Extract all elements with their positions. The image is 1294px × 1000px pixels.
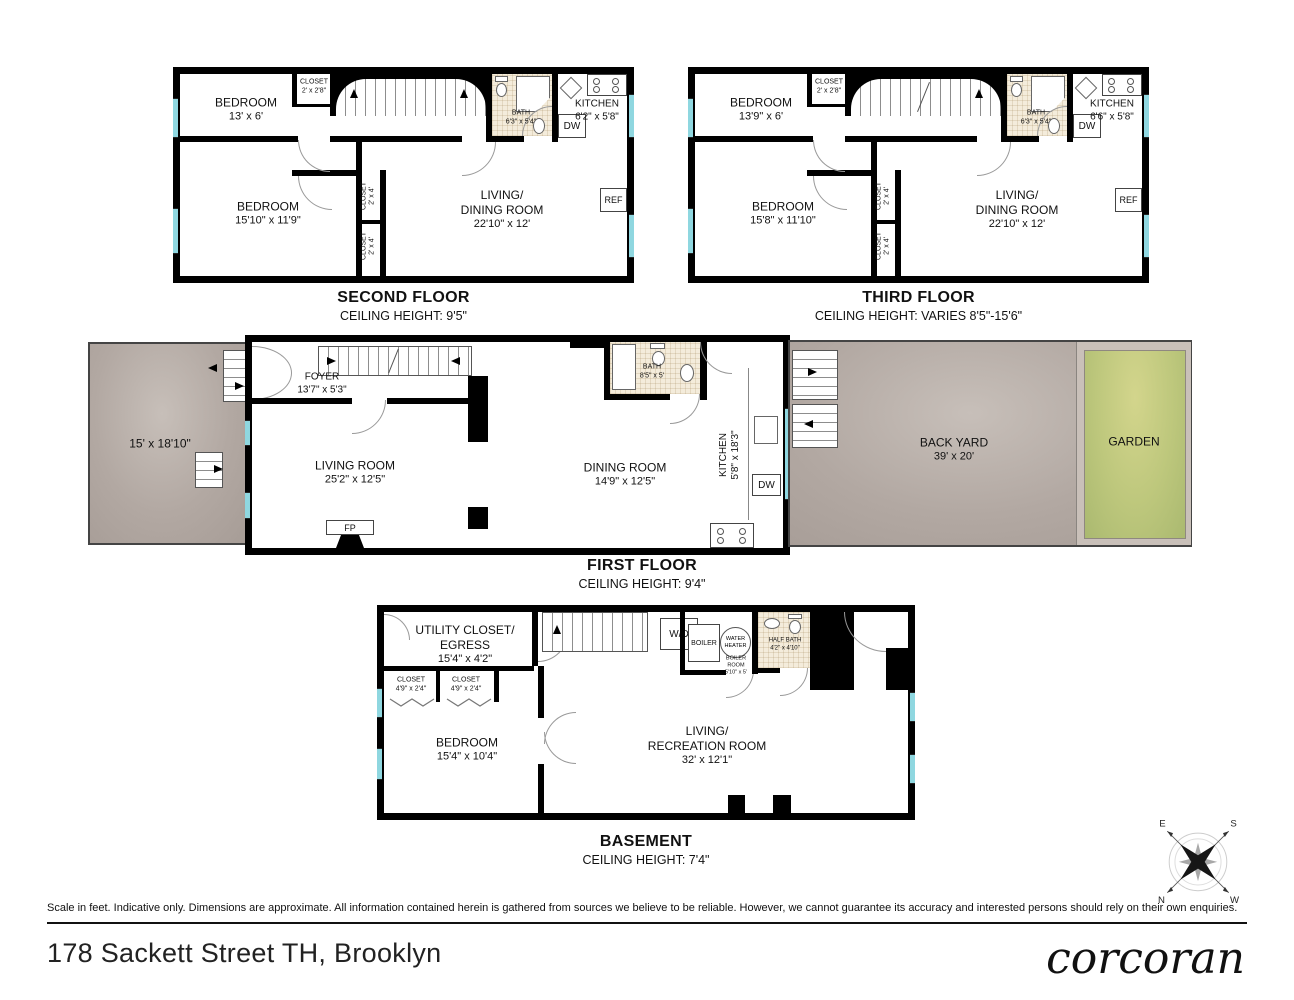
wall — [728, 795, 745, 813]
room-dims: 4'9" x 2'4" — [396, 685, 427, 694]
front-yard: 15' x 18'10" — [88, 342, 252, 545]
room-name: DINING ROOM — [976, 203, 1059, 218]
room-dims: 6'6" x 5'8" — [1090, 111, 1134, 124]
floor-name: FIRST FLOOR — [88, 557, 1196, 575]
room-name: DINING ROOM — [461, 203, 544, 218]
window — [629, 214, 634, 258]
room-name: BATH — [640, 363, 664, 372]
room-name: CLOSET — [361, 182, 369, 210]
ref-label: REF — [605, 195, 623, 205]
room-dims: 22'10" x 12' — [976, 218, 1059, 232]
room-name: KITCHEN — [718, 430, 730, 479]
room-name: EGRESS — [415, 638, 514, 653]
up-arrow-icon — [553, 625, 561, 634]
second-floor-plan: DW REF BEDROOM 13' x 6' CLOSET 2' x 2'8"… — [173, 67, 634, 283]
room-dims: 15'4" x 10'4" — [436, 751, 498, 765]
window — [173, 208, 178, 254]
kitchen-sink — [560, 77, 583, 100]
room-name: CLOSET — [876, 232, 884, 260]
floor-title-third: THIRD FLOOR CEILING HEIGHT: VARIES 8'5"-… — [688, 289, 1149, 323]
yard-dims: 15' x 18'10" — [129, 437, 191, 452]
room-name: FOYER — [297, 372, 346, 385]
ceiling-height: CEILING HEIGHT: VARIES 8'5"-15'6" — [688, 309, 1149, 323]
fireplace: FP — [326, 520, 374, 535]
burner-icon — [612, 86, 619, 93]
right-arrow-icon — [235, 382, 244, 390]
ceiling-height: CEILING HEIGHT: 9'4" — [88, 577, 1196, 591]
burner-icon — [1127, 78, 1134, 85]
room-label-half-bath: HALF BATH 4'2" x 4'10" — [769, 638, 802, 653]
stair-break-line — [388, 349, 399, 373]
room-dims: 5'10" x 5' — [725, 669, 747, 676]
wall — [758, 668, 780, 673]
dishwasher: DW — [752, 474, 781, 496]
dw-label: DW — [758, 480, 775, 491]
room-name: CLOSET — [361, 232, 369, 260]
floor-title-basement: BASEMENT CEILING HEIGHT: 7'4" — [377, 833, 915, 867]
room-name: BEDROOM — [235, 200, 301, 215]
door-arc — [352, 400, 386, 434]
boiler: BOILER — [688, 624, 720, 662]
room-dims: 15'4" x 4'2" — [415, 653, 514, 667]
window — [1144, 214, 1149, 258]
boiler-label: BOILER — [691, 640, 717, 647]
room-label-closet: CLOSET 2' x 4' — [876, 232, 893, 260]
room-name: UTILITY CLOSET/ — [415, 623, 514, 638]
door-arc — [670, 394, 700, 424]
bathroom-sink — [680, 364, 694, 382]
floor-name: SECOND FLOOR — [173, 289, 634, 307]
room-label-bedroom: BEDROOM 15'10" x 11'9" — [235, 200, 301, 229]
room-label-backyard: BACK YARD 39' x 20' — [920, 436, 988, 465]
compass-s-label: S — [1230, 818, 1236, 829]
shower — [612, 344, 636, 390]
floor-title-first: FIRST FLOOR CEILING HEIGHT: 9'4" — [88, 557, 1196, 591]
right-arrow-icon — [214, 465, 223, 473]
wall — [871, 220, 901, 224]
room-name: KITCHEN — [1090, 99, 1134, 112]
window — [688, 98, 693, 138]
room-name: ROOM — [725, 663, 747, 670]
door-arc — [780, 668, 808, 696]
room-name: BATH — [506, 109, 537, 118]
room-label-living-rec: LIVING/ RECREATION ROOM 32' x 12'1" — [648, 724, 766, 768]
stove — [1102, 74, 1142, 96]
room-label-kitchen: KITCHEN 6'6" x 5'8" — [1090, 99, 1134, 124]
room-dims: 8'5" x 5' — [640, 372, 664, 381]
corcoran-logo: corcoran — [1046, 933, 1245, 984]
up-arrow-icon — [350, 89, 358, 98]
toilet-bowl — [789, 620, 801, 634]
room-name: CLOSET — [396, 676, 427, 685]
room-label-closet: CLOSET 2' x 4' — [361, 182, 378, 210]
room-label-utility: UTILITY CLOSET/ EGRESS 15'4" x 4'2" — [415, 623, 514, 667]
wall — [468, 507, 488, 529]
disclaimer-text: Scale in feet. Indicative only. Dimensio… — [47, 902, 1247, 924]
room-dims: 5'8" x 18'3" — [730, 430, 742, 479]
wall — [384, 666, 534, 671]
room-label-kitchen: KITCHEN 5'8" x 18'3" — [718, 430, 742, 479]
room-dims: 15' x 18'10" — [129, 437, 191, 452]
toilet-bowl — [496, 83, 507, 97]
toilet-tank — [650, 343, 665, 349]
room-dims: 15'10" x 11'9" — [235, 215, 301, 229]
window — [910, 754, 915, 784]
ceiling-height: CEILING HEIGHT: 7'4" — [377, 853, 915, 867]
wall — [773, 795, 791, 813]
wall — [252, 398, 352, 404]
stair-break-line — [917, 82, 930, 112]
door-arc — [544, 732, 576, 764]
room-name: BATH — [1021, 109, 1052, 118]
door-arc — [813, 176, 847, 210]
wall — [886, 648, 908, 690]
room-name: BOILER — [725, 656, 747, 663]
room-name: CLOSET — [876, 182, 884, 210]
door-arc — [252, 346, 292, 373]
first-floor-house: DW FP FOYER 13'7" x 5'3" LIVING ROOM 25'… — [245, 335, 790, 555]
floor-name: THIRD FLOOR — [688, 289, 1149, 307]
room-dims: 6'2" x 5'8" — [575, 111, 619, 124]
burner-icon — [739, 537, 746, 544]
burner-icon — [1108, 78, 1115, 85]
wall — [538, 764, 544, 813]
door-arc — [462, 142, 496, 176]
room-dims: 22'10" x 12' — [461, 218, 544, 232]
ref-label: REF — [1120, 195, 1138, 205]
room-name: BEDROOM — [730, 96, 792, 111]
room-label-kitchen: KITCHEN 6'2" x 5'8" — [575, 99, 619, 124]
refrigerator: REF — [600, 188, 627, 212]
toilet-tank — [495, 76, 508, 82]
room-label-dining: DINING ROOM 14'9" x 12'5" — [584, 461, 667, 490]
wall — [468, 376, 488, 442]
window — [688, 208, 693, 254]
bathroom-sink — [764, 618, 780, 629]
room-dims: 13'7" x 5'3" — [297, 384, 346, 397]
back-steps — [792, 404, 838, 448]
room-dims: 32' x 12'1" — [648, 754, 766, 768]
room-label-garden: GARDEN — [1108, 435, 1159, 450]
burner-icon — [717, 528, 724, 535]
fp-label: FP — [344, 523, 356, 533]
burner-icon — [739, 528, 746, 535]
room-name: BEDROOM — [215, 96, 277, 111]
room-dims: 39' x 20' — [920, 451, 988, 465]
burner-icon — [612, 78, 619, 85]
back-yard: BACK YARD 39' x 20' GARDEN — [788, 340, 1192, 547]
room-dims: 6'3" x 5'4" — [506, 118, 537, 127]
room-name: RECREATION ROOM — [648, 739, 766, 754]
room-name: LIVING ROOM — [315, 459, 395, 474]
left-arrow-icon — [208, 364, 217, 372]
toilet-bowl — [1011, 83, 1022, 97]
room-label-bedroom: BEDROOM 13' x 6' — [215, 96, 277, 125]
room-label-bedroom: BEDROOM 15'8" x 11'10" — [750, 200, 816, 229]
window — [377, 748, 382, 780]
first-floor-plan: 15' x 18'10" — [88, 335, 1196, 555]
compass-e-label: E — [1159, 818, 1165, 829]
room-name: KITCHEN — [575, 99, 619, 112]
room-label-living-dining: LIVING/ DINING ROOM 22'10" x 12' — [461, 188, 544, 232]
room-name: BACK YARD — [920, 436, 988, 451]
wall — [494, 666, 499, 702]
room-name: CLOSET — [815, 78, 843, 87]
kitchen-sink — [754, 416, 778, 444]
closet-door-zigzag-icon — [389, 698, 435, 708]
room-name: HALF BATH — [769, 638, 802, 646]
room-dims: 13'9" x 6' — [730, 111, 792, 125]
wall — [387, 398, 477, 404]
room-label-bath: BATH 6'3" x 5'4" — [506, 109, 537, 127]
room-dims: 2' x 4' — [884, 182, 892, 210]
burner-icon — [593, 78, 600, 85]
room-label-closet: CLOSET 2' x 2'8" — [300, 78, 328, 96]
wall — [604, 394, 670, 400]
wall — [436, 666, 440, 702]
room-name: DINING ROOM — [584, 461, 667, 476]
up-arrow-icon — [460, 89, 468, 98]
wd-label: W/D — [669, 629, 688, 640]
room-dims: 25'2" x 12'5" — [315, 474, 395, 488]
room-label-bedroom: BEDROOM 15'4" x 10'4" — [436, 736, 498, 765]
room-label-closet: CLOSET 4'9" x 2'4" — [451, 676, 482, 694]
burner-icon — [593, 86, 600, 93]
closet-door-zigzag-icon — [446, 698, 492, 708]
water-heater: WATER HEATER — [720, 627, 751, 658]
wall — [356, 220, 386, 224]
stairs — [542, 612, 648, 652]
room-label-foyer: FOYER 13'7" x 5'3" — [297, 372, 346, 397]
stove — [587, 74, 627, 96]
floor-name: BASEMENT — [377, 833, 915, 851]
door-arc — [298, 140, 330, 172]
ceiling-height: CEILING HEIGHT: 9'5" — [173, 309, 634, 323]
room-label-closet: CLOSET 2' x 4' — [876, 182, 893, 210]
compass-rose: E S N W — [1150, 812, 1246, 908]
right-arrow-icon — [808, 368, 817, 376]
third-floor-plan: DW REF BEDROOM 13'9" x 6' CLOSET 2' x 2'… — [688, 67, 1149, 283]
window — [629, 94, 634, 138]
door-arc — [252, 373, 292, 400]
room-label-closet: CLOSET 2' x 2'8" — [815, 78, 843, 96]
room-label-closet: CLOSET 4'9" x 2'4" — [396, 676, 427, 694]
burner-icon — [1127, 86, 1134, 93]
water-heater-label: WATER — [726, 636, 745, 643]
room-dims: 2' x 4' — [884, 232, 892, 260]
room-label-closet: CLOSET 2' x 4' — [361, 232, 378, 260]
burner-icon — [1108, 86, 1115, 93]
floorplan-page: DW REF BEDROOM 13' x 6' CLOSET 2' x 2'8"… — [0, 0, 1294, 1000]
left-arrow-icon — [451, 357, 460, 365]
counter-edge — [748, 368, 749, 520]
floor-title-second: SECOND FLOOR CEILING HEIGHT: 9'5" — [173, 289, 634, 323]
wall — [845, 136, 977, 142]
kitchen-sink — [1075, 77, 1098, 100]
toilet-tank — [1010, 76, 1023, 82]
room-dims: 2' x 2'8" — [300, 87, 328, 96]
stove — [710, 523, 754, 548]
room-label-living: LIVING ROOM 25'2" x 12'5" — [315, 459, 395, 488]
room-name: GARDEN — [1108, 435, 1159, 450]
room-dims: 13' x 6' — [215, 111, 277, 125]
water-heater-label: HEATER — [725, 643, 747, 650]
room-label-living-dining: LIVING/ DINING ROOM 22'10" x 12' — [976, 188, 1059, 232]
burner-icon — [717, 537, 724, 544]
room-name: LIVING/ — [976, 188, 1059, 203]
room-name: BEDROOM — [750, 200, 816, 215]
door-arc — [813, 140, 845, 172]
right-arrow-icon — [327, 357, 336, 365]
window — [910, 692, 915, 722]
room-name: BEDROOM — [436, 736, 498, 751]
room-dims: 2' x 4' — [369, 232, 377, 260]
room-dims: 6'3" x 5'4" — [1021, 118, 1052, 127]
wall — [330, 136, 462, 142]
window — [173, 98, 178, 138]
refrigerator: REF — [1115, 188, 1142, 212]
basement-plan: UTILITY CLOSET/ EGRESS 15'4" x 4'2" CLOS… — [377, 605, 915, 820]
room-name: CLOSET — [300, 78, 328, 87]
wall — [680, 612, 685, 674]
window — [1144, 94, 1149, 138]
room-label-boiler-room: BOILER ROOM 5'10" x 5' — [725, 656, 747, 677]
window — [245, 420, 250, 446]
room-dims: 15'8" x 11'10" — [750, 215, 816, 229]
room-name: LIVING/ — [648, 724, 766, 739]
room-dims: 2' x 4' — [369, 182, 377, 210]
fireplace-hearth — [336, 535, 364, 548]
left-arrow-icon — [804, 420, 813, 428]
stairs — [851, 79, 1001, 116]
stairs — [336, 79, 486, 116]
door-arc — [384, 614, 410, 640]
room-dims: 4'9" x 2'4" — [451, 685, 482, 694]
wall — [807, 74, 812, 106]
wall — [538, 666, 544, 718]
room-label-bath: BATH 8'5" x 5' — [640, 363, 664, 381]
room-dims: 4'2" x 4'10" — [769, 645, 802, 653]
toilet-tank — [788, 614, 802, 619]
room-label-bath: BATH 6'3" x 5'4" — [1021, 109, 1052, 127]
room-dims: 2' x 2'8" — [815, 87, 843, 96]
wall — [180, 136, 298, 142]
door-arc — [298, 176, 332, 210]
wall — [695, 136, 813, 142]
room-name: LIVING/ — [461, 188, 544, 203]
door-arc — [977, 142, 1011, 176]
property-address: 178 Sackett Street TH, Brooklyn — [47, 938, 442, 969]
room-label-bedroom: BEDROOM 13'9" x 6' — [730, 96, 792, 125]
room-dims: 14'9" x 12'5" — [584, 476, 667, 490]
window — [245, 492, 250, 519]
window — [377, 688, 382, 718]
up-arrow-icon — [975, 89, 983, 98]
wall — [680, 670, 726, 675]
room-name: CLOSET — [451, 676, 482, 685]
wall — [292, 74, 297, 106]
